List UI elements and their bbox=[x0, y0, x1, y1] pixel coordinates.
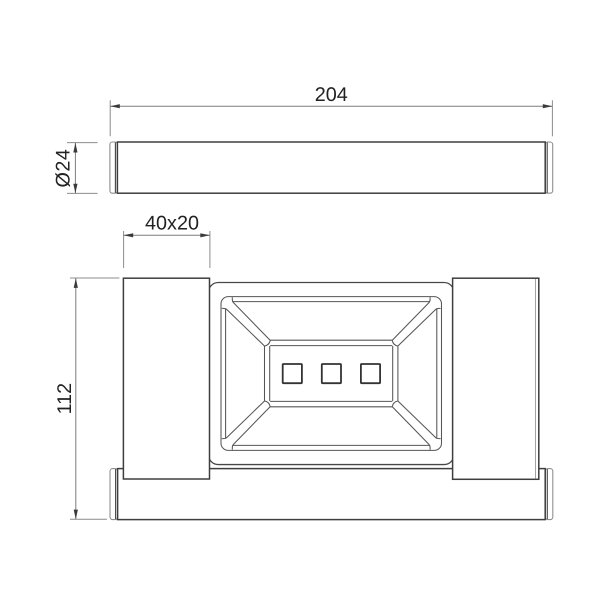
svg-text:112: 112 bbox=[54, 383, 76, 415]
svg-text:204: 204 bbox=[315, 84, 348, 106]
svg-text:Ø24: Ø24 bbox=[53, 149, 75, 188]
svg-text:40x20: 40x20 bbox=[145, 212, 199, 234]
